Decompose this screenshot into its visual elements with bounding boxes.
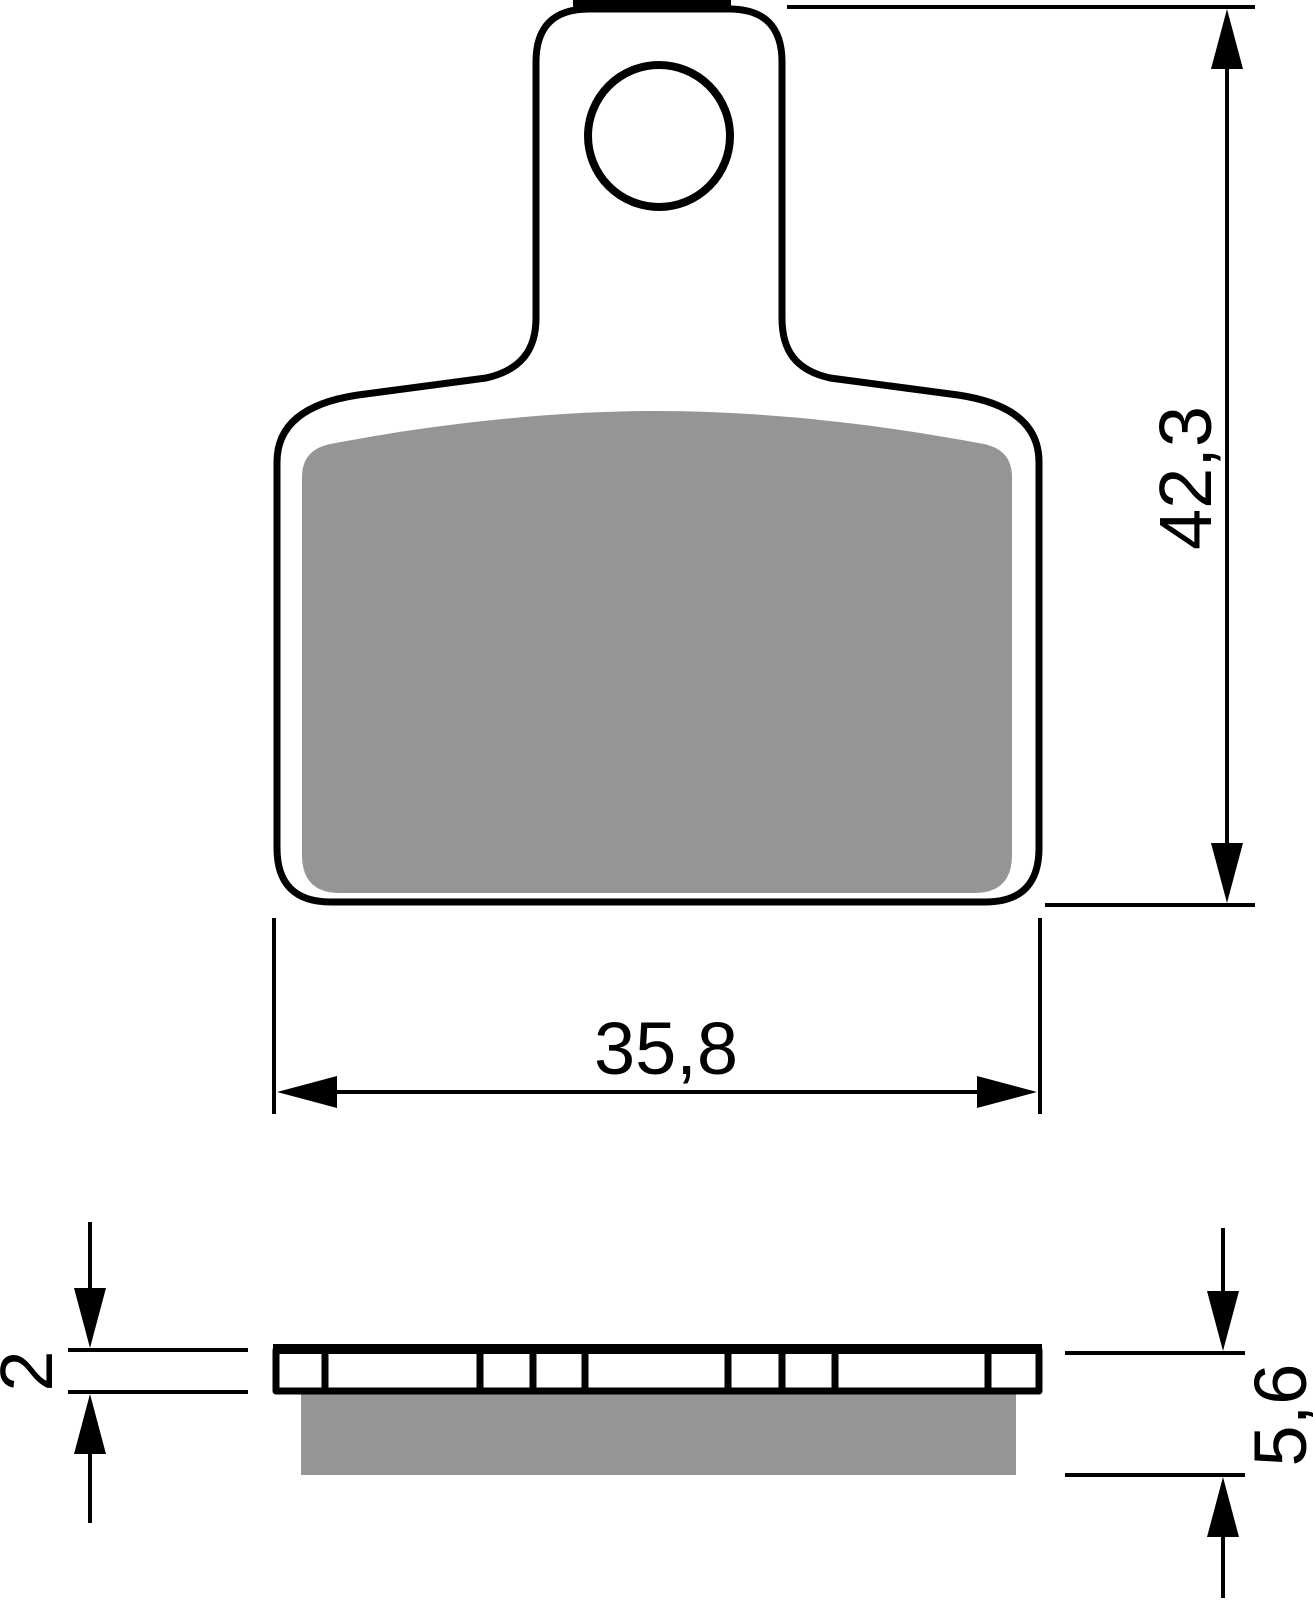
dimension-backplate-thickness: 2	[0, 1222, 248, 1523]
backplate-side	[276, 1350, 1039, 1391]
top-edge-bar	[573, 0, 731, 10]
dimension-label-height: 42,3	[1144, 406, 1227, 550]
brake-pad-drawing: 42,3 35,8	[0, 0, 1313, 1600]
dimension-overall-width: 35,8	[274, 918, 1040, 1114]
arrowhead-down	[1207, 1291, 1239, 1351]
mounting-hole	[588, 65, 730, 207]
technical-drawing-page: 42,3 35,8	[0, 0, 1313, 1600]
dimension-label-width: 35,8	[594, 1007, 738, 1090]
arrowhead-down	[74, 1288, 106, 1348]
front-view	[277, 0, 1039, 902]
arrowhead-down	[1211, 843, 1243, 903]
side-view	[273, 1349, 1042, 1475]
friction-material-side	[301, 1392, 1016, 1475]
dimension-label-plate: 2	[0, 1350, 68, 1391]
dimension-total-thickness: 5,6	[1065, 1228, 1313, 1598]
arrowhead-right	[977, 1076, 1037, 1108]
arrowhead-up	[1211, 9, 1243, 69]
friction-material-front	[302, 411, 1012, 893]
arrowhead-up	[1207, 1477, 1239, 1537]
dimension-label-total: 5,6	[1239, 1364, 1313, 1467]
arrowhead-up	[74, 1394, 106, 1454]
arrowhead-left	[277, 1076, 337, 1108]
